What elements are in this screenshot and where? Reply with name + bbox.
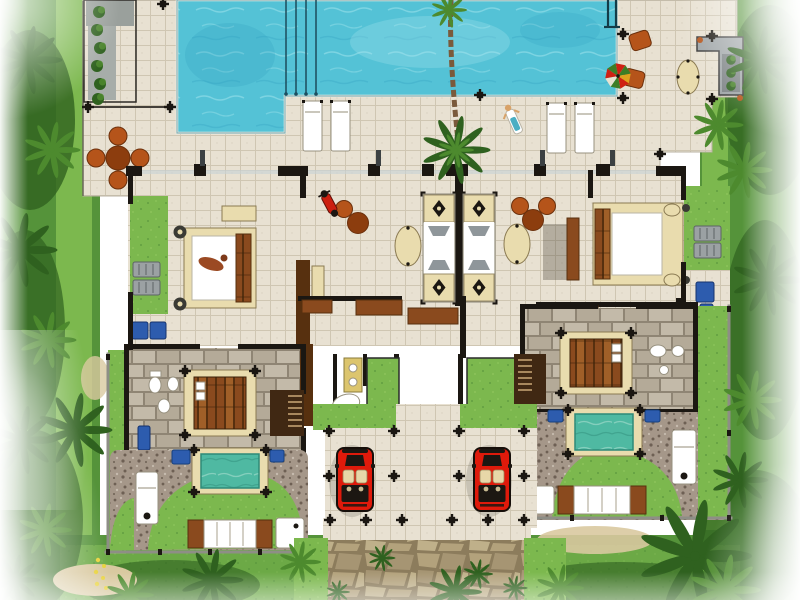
bedroom-bench <box>222 206 256 221</box>
garden-lounger <box>694 243 721 258</box>
timber-bench <box>567 218 579 280</box>
toilet <box>650 345 666 357</box>
bed-right <box>593 203 690 286</box>
pool-pad <box>548 410 563 422</box>
garden-lounger <box>694 226 721 241</box>
sala-daybed <box>461 192 498 305</box>
furniture-shadow <box>543 224 569 280</box>
car-right <box>466 445 512 517</box>
massage-table <box>672 430 696 484</box>
garden-lounger <box>133 262 160 277</box>
sala-daybed <box>421 192 458 305</box>
oval-side-table <box>504 224 530 264</box>
villa-floor-plan-image <box>0 0 800 600</box>
parking-and-entry <box>294 404 566 600</box>
pool-pad <box>270 450 284 462</box>
basin <box>660 366 669 375</box>
headboard <box>595 209 610 279</box>
entry-threshold <box>323 518 531 540</box>
toilet <box>149 377 161 393</box>
timber-bed-platform <box>555 327 637 399</box>
sun-lounger <box>574 102 595 153</box>
staircase <box>514 354 546 404</box>
timber-daybed <box>558 486 646 514</box>
pool-pad <box>645 410 660 422</box>
oval-side-table <box>395 226 421 266</box>
bidet <box>672 346 684 357</box>
bidet <box>168 377 179 391</box>
massage-table <box>136 472 158 524</box>
sun-lounger <box>546 102 567 153</box>
blue-bench <box>138 426 150 450</box>
car-left <box>329 445 375 517</box>
pool-pad <box>172 450 190 464</box>
garden-lounger <box>133 280 160 295</box>
sun-lounger <box>302 100 323 151</box>
sun-lounger <box>330 100 351 151</box>
master-suite-right <box>514 304 728 416</box>
headboard <box>236 234 251 302</box>
floor-plan-svg <box>0 0 800 600</box>
basin <box>158 399 170 413</box>
timber-bed-platform <box>179 365 261 441</box>
side-garden-left <box>130 196 168 314</box>
bed-left <box>174 226 257 311</box>
timber-daybed <box>188 520 272 548</box>
staircase <box>270 390 304 436</box>
